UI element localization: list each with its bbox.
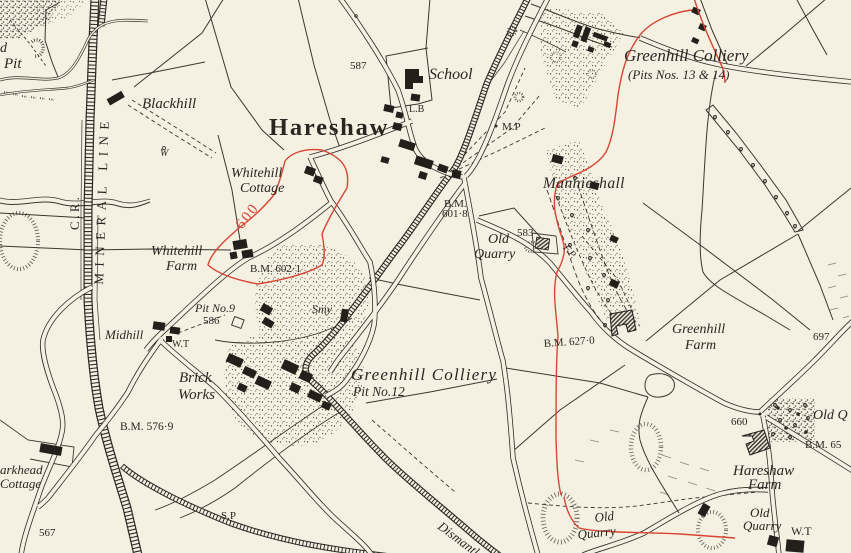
svg-text:Farm: Farm [165, 259, 197, 274]
svg-text:S.P: S.P [221, 510, 236, 522]
svg-text:M.P: M.P [502, 121, 521, 133]
svg-text:School: School [429, 66, 473, 83]
svg-text:B.M. 576·9: B.M. 576·9 [120, 421, 174, 433]
svg-text:587: 587 [350, 60, 367, 72]
svg-text:L.B: L.B [409, 104, 425, 115]
svg-text:697: 697 [813, 331, 830, 343]
svg-text:B.M. 65: B.M. 65 [805, 439, 842, 451]
svg-text:C.R.: C.R. [67, 194, 82, 230]
svg-text:Cottage: Cottage [0, 476, 41, 491]
svg-text:660: 660 [731, 416, 748, 428]
svg-text:Midhill: Midhill [104, 327, 144, 342]
svg-text:Farm: Farm [684, 338, 716, 353]
svg-text:Old: Old [488, 232, 510, 247]
svg-text:Greenhill Colliery: Greenhill Colliery [624, 46, 749, 65]
svg-text:567: 567 [39, 527, 56, 539]
svg-text:B.M. 602·1: B.M. 602·1 [250, 263, 301, 275]
svg-text:583: 583 [517, 227, 534, 239]
svg-text:Blackhill: Blackhill [142, 96, 196, 112]
svg-text:arkhead: arkhead [0, 462, 43, 477]
svg-text:Old Q: Old Q [813, 408, 848, 423]
svg-text:601·8: 601·8 [442, 208, 468, 220]
svg-text:(Pits Nos. 13 & 14): (Pits Nos. 13 & 14) [628, 67, 729, 82]
svg-text:Whitehill: Whitehill [151, 244, 202, 259]
svg-text:Farm: Farm [747, 477, 782, 493]
svg-text:Hareshaw: Hareshaw [269, 114, 389, 141]
svg-text:Quarry: Quarry [743, 518, 782, 533]
svg-text:Quarry: Quarry [474, 247, 516, 262]
svg-text:Pit No.9: Pit No.9 [194, 301, 235, 315]
svg-text:Pit No.12: Pit No.12 [352, 384, 405, 399]
svg-text:Whitehill: Whitehill [231, 166, 282, 181]
svg-text:d: d [0, 41, 8, 56]
svg-text:Pit: Pit [3, 56, 22, 72]
svg-text:Brick: Brick [179, 370, 212, 386]
svg-text:Cottage: Cottage [240, 181, 284, 196]
svg-text:Mannieshall: Mannieshall [542, 175, 625, 192]
svg-text:586: 586 [203, 315, 220, 327]
svg-text:Greenhill Colliery: Greenhill Colliery [351, 365, 497, 384]
svg-text:Smy: Smy [312, 302, 333, 316]
svg-text:W.T: W.T [172, 339, 189, 350]
svg-text:Works: Works [178, 387, 215, 403]
svg-text:Greenhill: Greenhill [672, 322, 725, 337]
svg-text:W.T: W.T [791, 524, 812, 538]
